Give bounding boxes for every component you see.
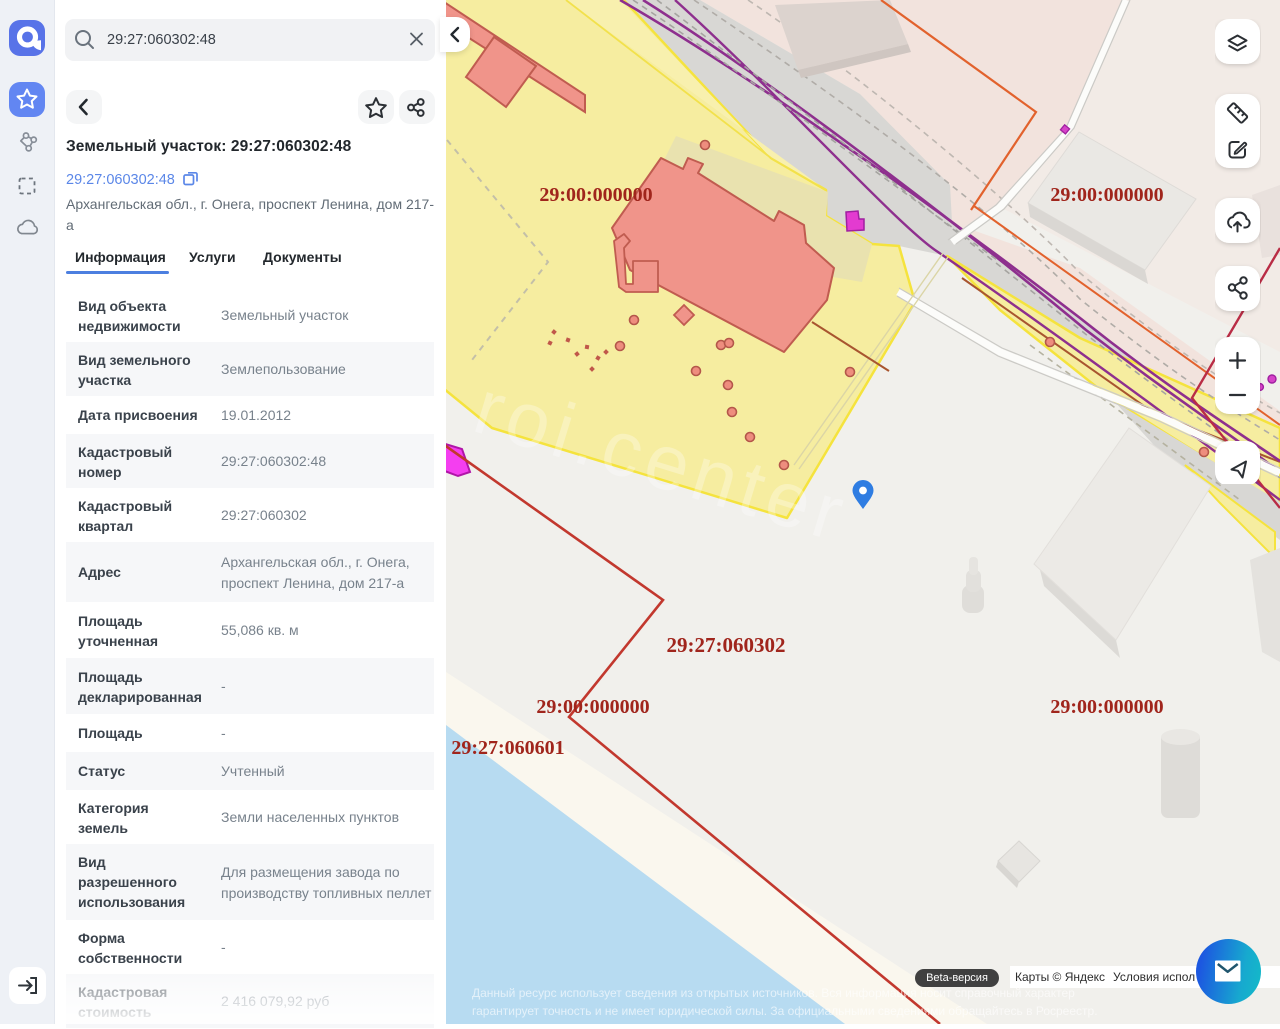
svg-text:29:00:000000: 29:00:000000 (536, 696, 649, 718)
svg-text:29:00:000000: 29:00:000000 (1050, 184, 1163, 206)
svg-text:29:00:000000: 29:00:000000 (1050, 696, 1163, 718)
svg-text:29:00:000000: 29:00:000000 (539, 184, 652, 206)
svg-text:29:27:060601: 29:27:060601 (451, 737, 564, 759)
svg-text:29:27:060302: 29:27:060302 (667, 633, 786, 657)
